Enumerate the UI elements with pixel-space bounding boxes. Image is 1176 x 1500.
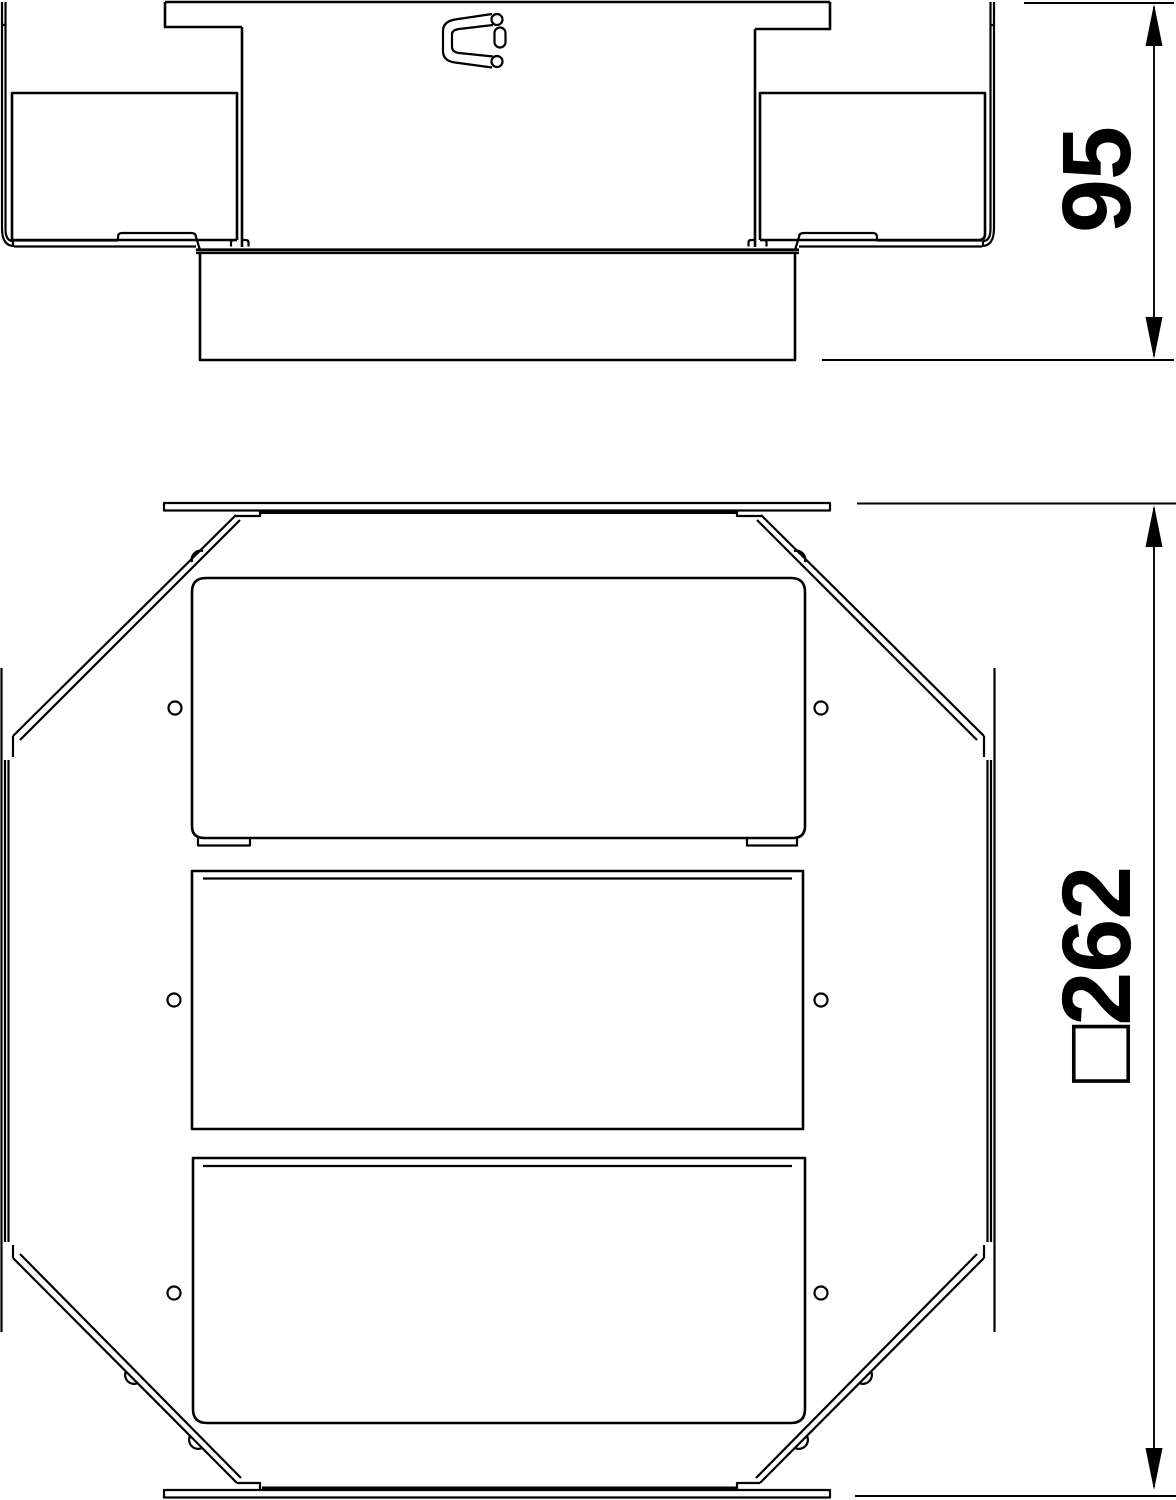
blind-plate-2 <box>192 871 803 1129</box>
left-wall-feet <box>231 240 249 247</box>
plan-top-plate <box>164 503 830 511</box>
screw-holes <box>168 702 828 1300</box>
screw-hole <box>169 702 182 715</box>
base-line-left <box>14 241 196 247</box>
plan-view <box>2 503 995 1498</box>
right-wall-feet <box>749 240 767 247</box>
top-right-chamfer <box>757 515 984 757</box>
width-dimension-label: □262 <box>1042 867 1151 1083</box>
screw-hole <box>815 1287 828 1300</box>
plan-top-right-lip <box>737 511 763 516</box>
width-dimension: □262 <box>855 504 1176 1497</box>
height-arrow-up <box>1146 4 1163 46</box>
height-arrow-down <box>1146 317 1163 359</box>
top-left-chamfer <box>13 515 240 757</box>
bottom-left-chamfer <box>13 1245 260 1489</box>
retaining-clip-detail <box>443 14 506 68</box>
drawing-svg: 95 <box>0 0 1176 1500</box>
lower-box <box>200 253 795 360</box>
height-dimension-label: 95 <box>1042 127 1151 233</box>
screw-hole <box>168 994 181 1007</box>
left-cover-plate <box>12 93 237 240</box>
bottom-right-chamfer <box>737 1245 984 1489</box>
screw-hole <box>815 702 828 715</box>
screw-hole <box>815 994 828 1007</box>
side-elevation-view <box>2 2 994 360</box>
blind-plate-1 <box>192 578 805 838</box>
technical-drawing-page: 95 <box>0 0 1176 1500</box>
plan-right-wall <box>988 668 995 1332</box>
screw-hole <box>168 1287 181 1300</box>
base-line-right <box>799 241 982 247</box>
plan-top-left-lip <box>234 511 260 516</box>
top-plate-right-step <box>755 2 830 29</box>
blind-plate-3 <box>193 1158 805 1423</box>
width-arrow-down <box>1146 1448 1163 1490</box>
plan-bottom-plate <box>164 1490 830 1498</box>
plan-left-wall <box>2 668 9 1332</box>
width-arrow-up <box>1146 505 1163 547</box>
top-plate-left-step <box>165 2 242 27</box>
right-cover-plate <box>760 93 985 240</box>
height-dimension: 95 <box>822 3 1174 360</box>
